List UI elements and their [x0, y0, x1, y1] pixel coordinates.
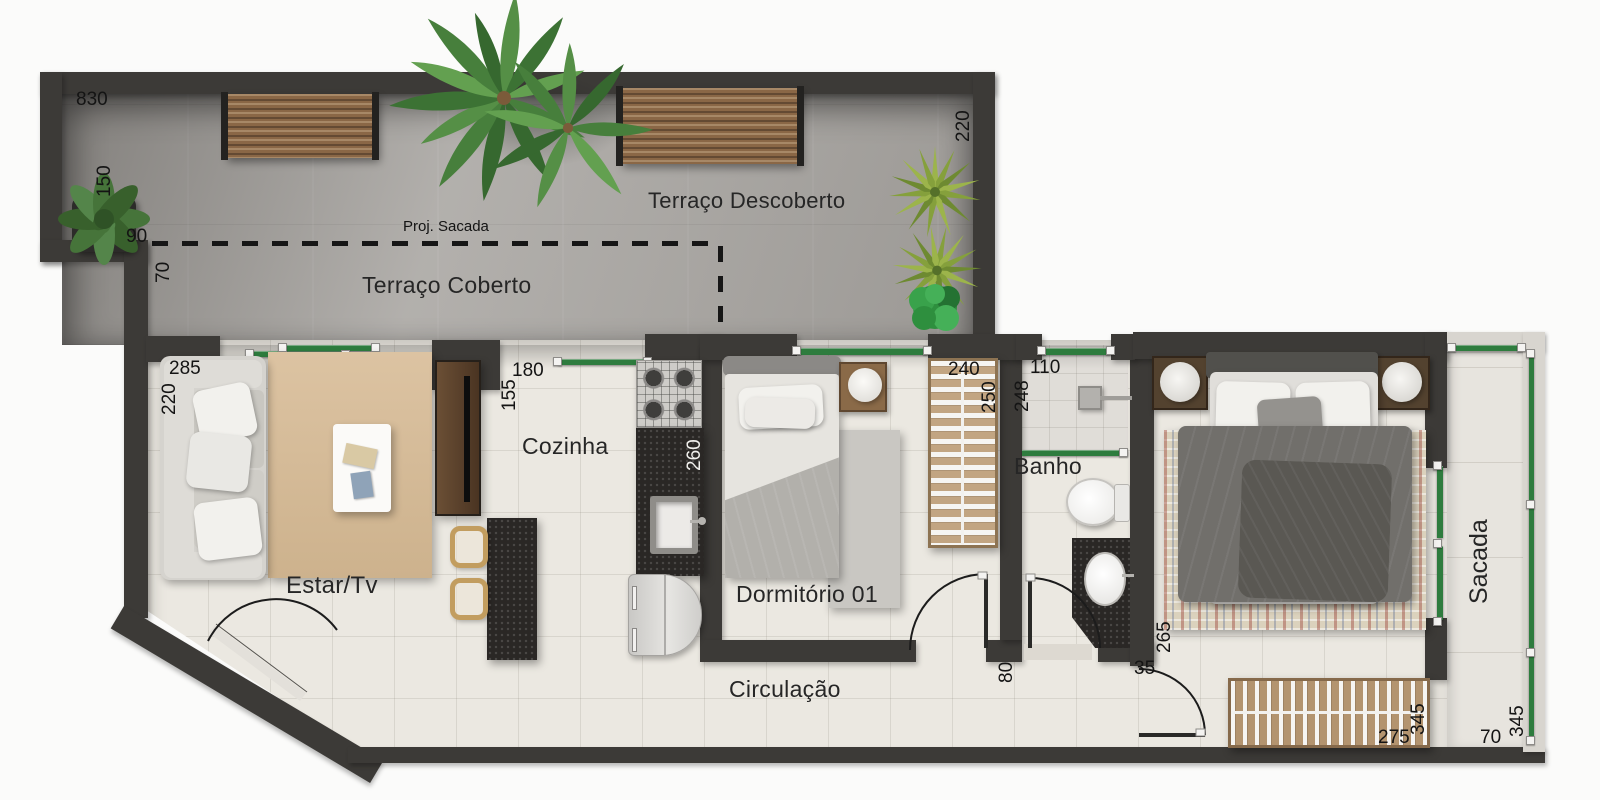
room-label-circulacao: Circulação: [729, 676, 841, 703]
dim-80: 80: [996, 662, 1018, 683]
dim-110: 110: [1030, 357, 1060, 379]
dim-345-dorm2: 345: [1408, 703, 1430, 735]
room-label-banho: Banho: [1014, 453, 1082, 480]
dim-250: 250: [979, 381, 1001, 413]
dim-240: 240: [948, 359, 980, 381]
dorm1-door-arc: [910, 574, 986, 650]
dim-830: 830: [76, 89, 108, 111]
dim-220-terrace: 220: [953, 110, 975, 142]
room-label-terraco-descoberto: Terraço Descoberto: [648, 188, 845, 214]
entry-door-leaf-edge: [216, 624, 307, 692]
dim-248: 248: [1012, 380, 1034, 412]
dim-220-estar: 220: [159, 383, 181, 415]
dim-150: 150: [94, 165, 116, 197]
dim-155: 155: [499, 379, 521, 411]
dim-260: 260: [684, 439, 706, 471]
dim-35: 35: [1134, 658, 1155, 680]
dim-275: 275: [1378, 727, 1410, 749]
entry-door-leaf: [212, 629, 303, 697]
dim-345-sacada: 345: [1507, 705, 1529, 737]
dim-285: 285: [169, 358, 201, 380]
room-label-cozinha: Cozinha: [522, 433, 609, 460]
dim-70-sacada: 70: [1480, 727, 1501, 749]
door-handle: [978, 572, 987, 579]
floor-plan: Terraço Descoberto Terraço Coberto Proj.…: [0, 0, 1600, 800]
door-handle: [1026, 574, 1035, 581]
banho-door-arc: [1030, 578, 1100, 648]
room-label-terraco-coberto: Terraço Coberto: [362, 272, 531, 299]
dim-90: 90: [126, 226, 147, 248]
room-label-dormitorio-01: Dormitório 01: [736, 581, 878, 608]
door-handle: [1196, 729, 1205, 736]
annotation-proj-sacada: Proj. Sacada: [403, 218, 489, 235]
dim-265: 265: [1154, 621, 1176, 653]
room-label-sacada: Sacada: [1465, 519, 1494, 604]
room-label-estar-tv: Estar/Tv: [286, 572, 378, 600]
dim-70-terrace: 70: [153, 262, 175, 283]
